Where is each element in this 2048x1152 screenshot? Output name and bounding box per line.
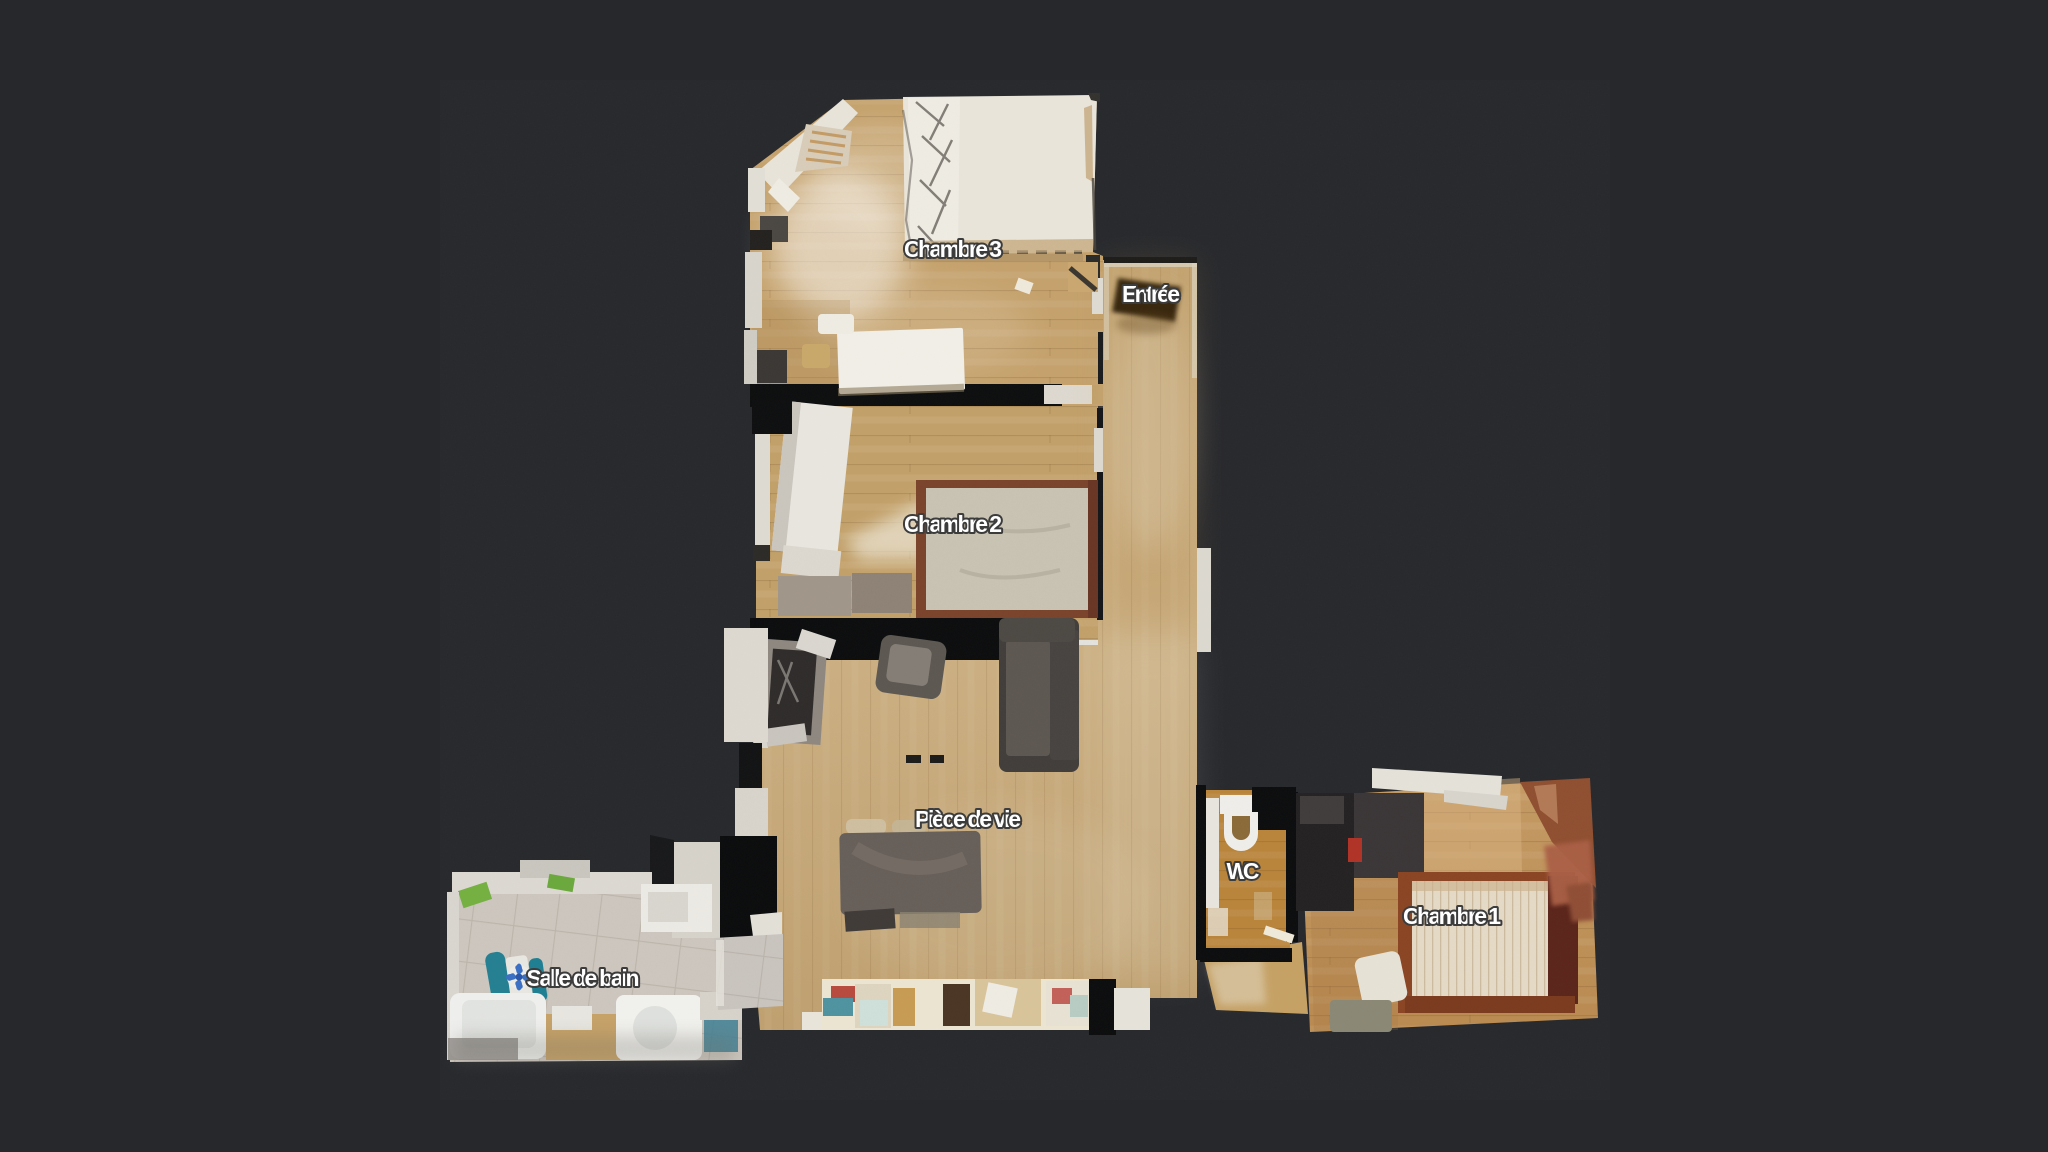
svg-text:Chambre 1: Chambre 1 [1403, 903, 1501, 929]
svg-text:Pièce de vie: Pièce de vie [915, 806, 1021, 832]
svg-text:Salle de bain: Salle de bain [527, 965, 640, 991]
svg-text:Chambre 2: Chambre 2 [904, 511, 1002, 537]
svg-text:Chambre 3: Chambre 3 [904, 236, 1002, 262]
svg-text:Entrée: Entrée [1122, 281, 1180, 307]
svg-text:WC: WC [1227, 858, 1260, 884]
